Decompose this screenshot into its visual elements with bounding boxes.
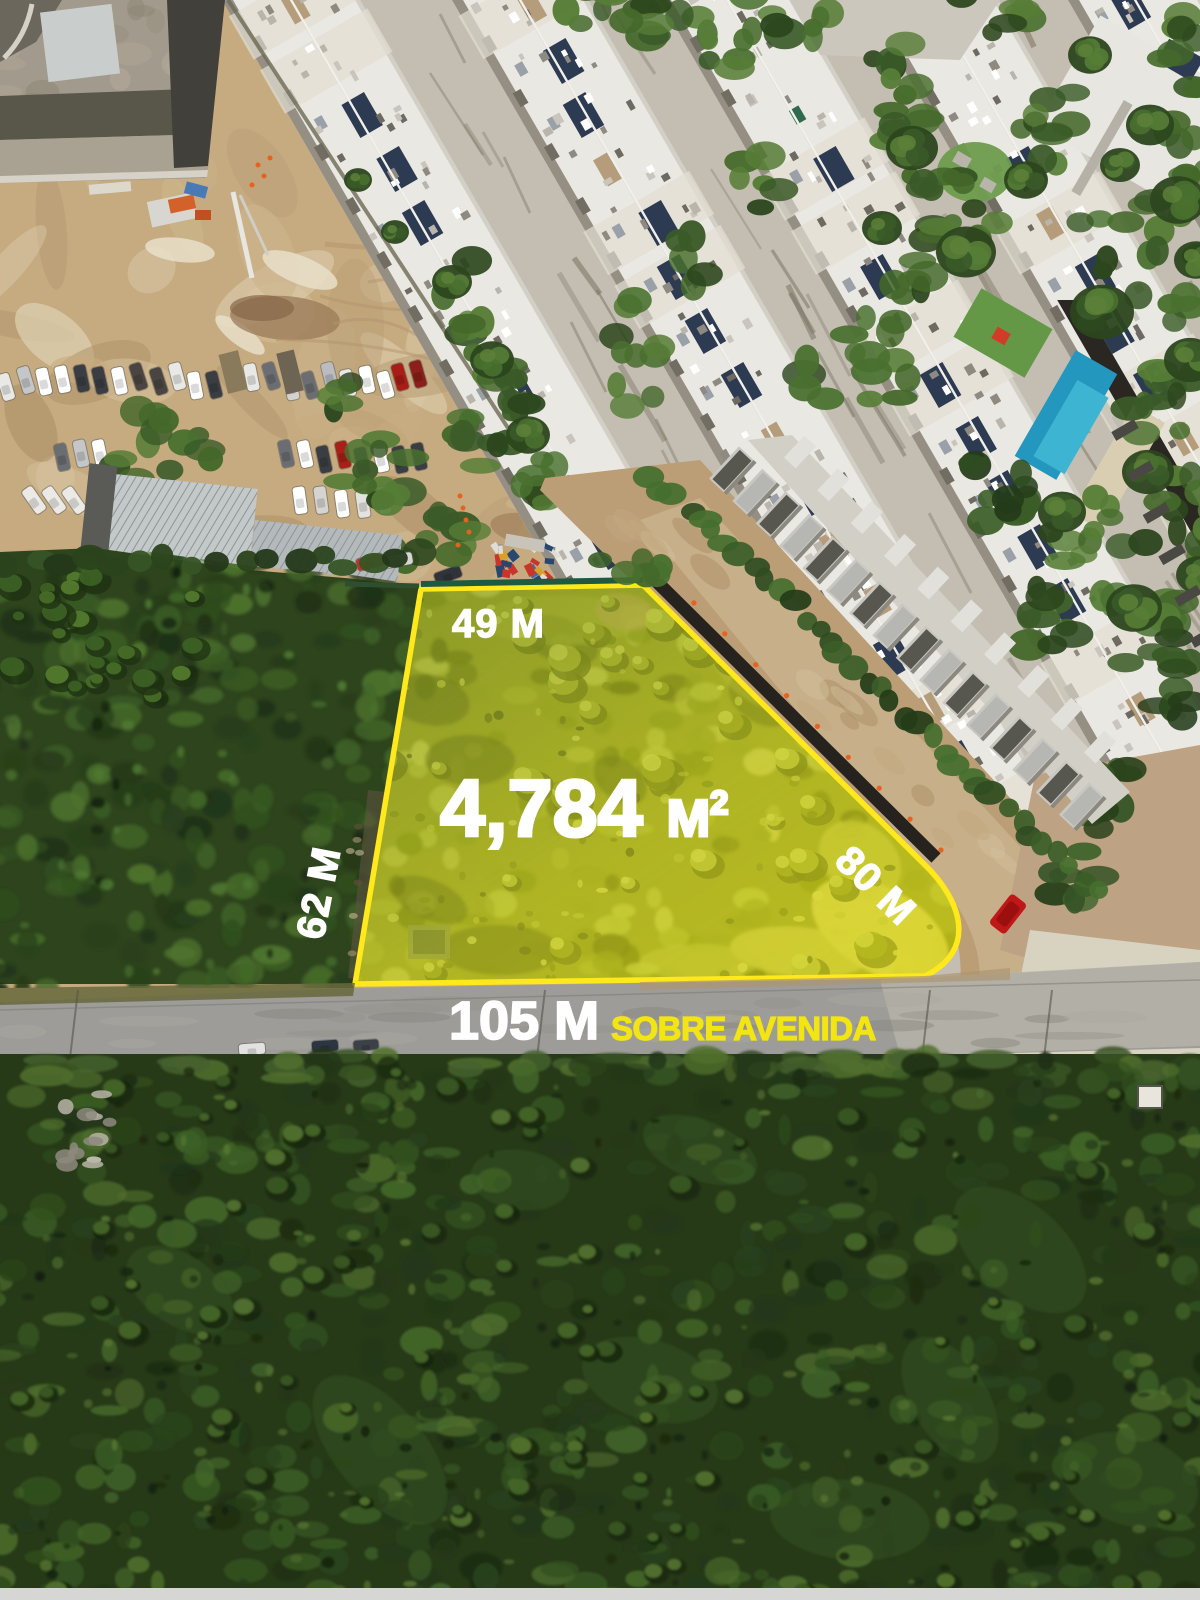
svg-text:105 M: 105 M xyxy=(449,991,599,1051)
svg-text:SOBRE AVENIDA: SOBRE AVENIDA xyxy=(611,1010,876,1047)
svg-text:49 M: 49 M xyxy=(452,602,545,646)
